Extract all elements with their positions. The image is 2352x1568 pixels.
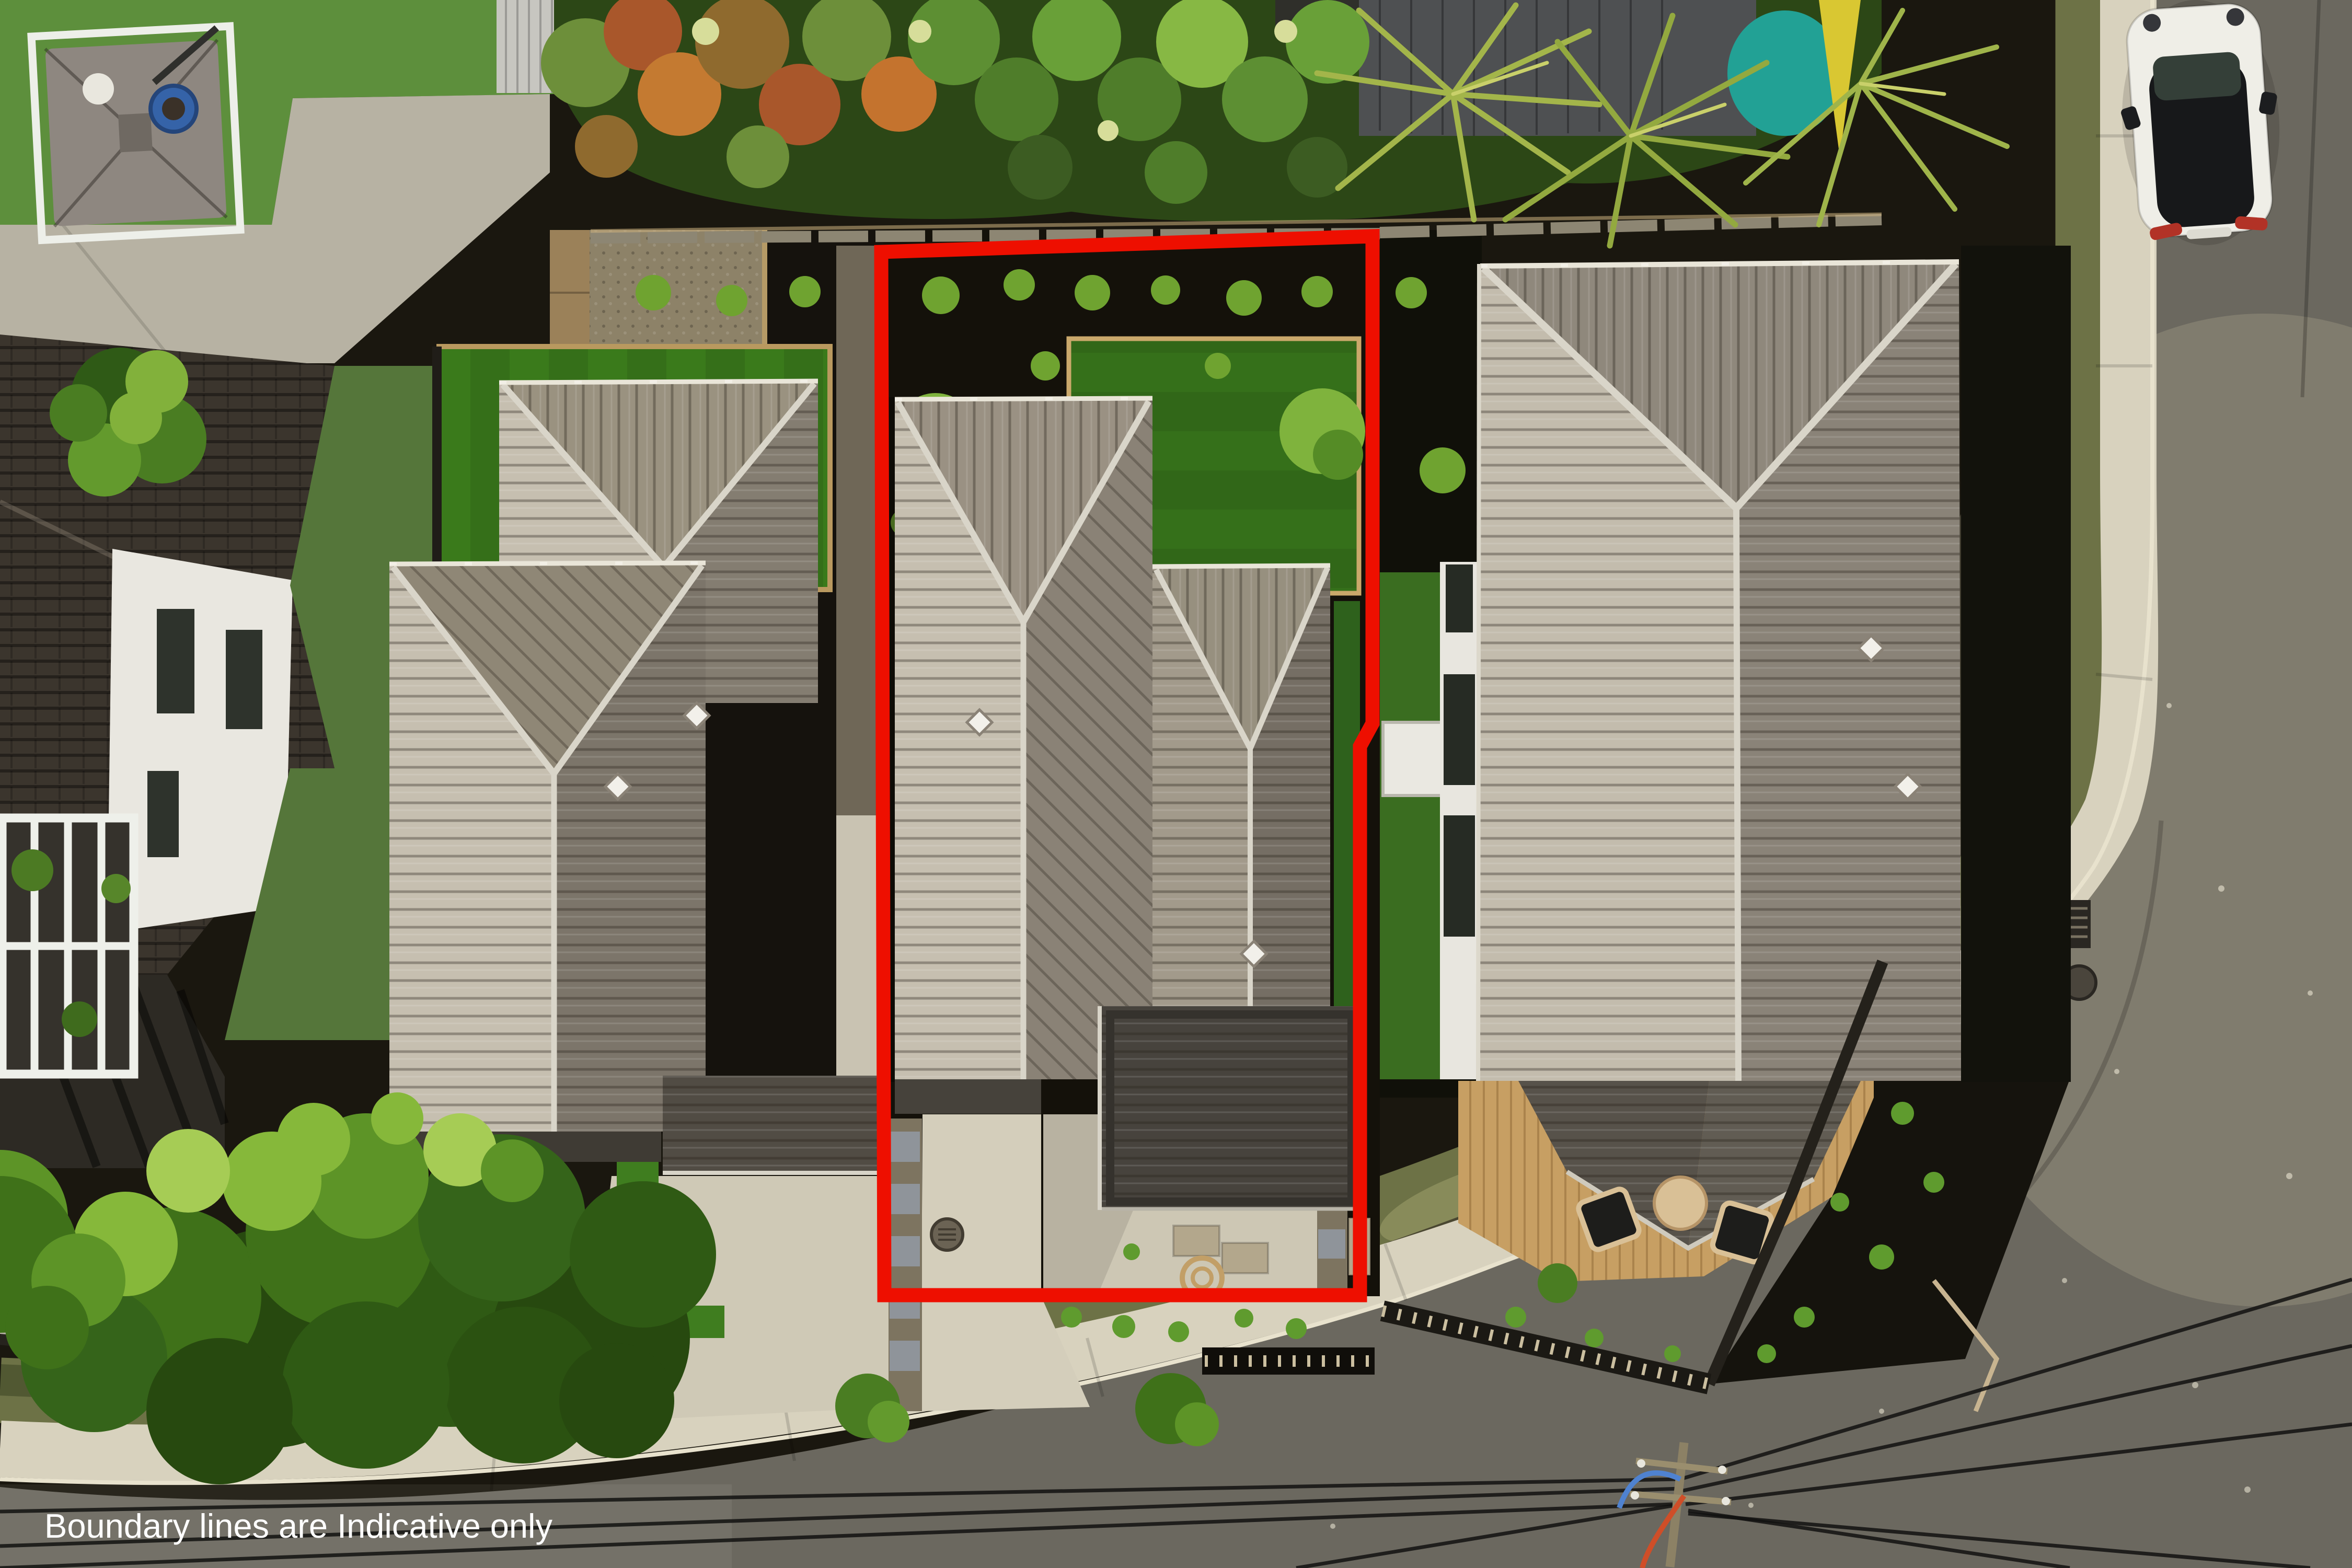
shade-garden-east bbox=[1961, 246, 2071, 1082]
white-pipe bbox=[83, 73, 114, 105]
car-taillight-right bbox=[2235, 216, 2268, 230]
subject-eave-shadow bbox=[895, 1079, 1041, 1114]
deck-table bbox=[1654, 1177, 1707, 1229]
east-main-roof bbox=[1478, 260, 1961, 1081]
balcony-plant-2 bbox=[62, 1001, 97, 1037]
subject-front-roof bbox=[1100, 1006, 1360, 1210]
balcony-plant bbox=[11, 849, 53, 891]
subject-unit-nw bbox=[895, 397, 1152, 1079]
patio-umbrella bbox=[31, 26, 240, 240]
parked-car bbox=[2113, 0, 2288, 251]
turf-square bbox=[685, 1306, 724, 1338]
heat-pump-unit bbox=[1383, 722, 1444, 795]
slat-screen-subject bbox=[1202, 1347, 1375, 1375]
east-windows bbox=[1444, 564, 1475, 937]
subject-unit-ne bbox=[1152, 564, 1330, 1079]
bush-2-shade bbox=[1313, 430, 1363, 480]
caption-text: Boundary lines are Indicative only bbox=[44, 1507, 552, 1545]
pot-soil bbox=[162, 97, 185, 120]
duplex-porch-ribs bbox=[663, 1076, 889, 1174]
car-windshield bbox=[2152, 51, 2242, 101]
balcony-plant-3 bbox=[101, 874, 131, 903]
duplex-unit-front bbox=[389, 562, 706, 1132]
umbrella-vent bbox=[118, 113, 153, 152]
aerial-photo: Boundary lines are Indicative only bbox=[0, 0, 2352, 1568]
